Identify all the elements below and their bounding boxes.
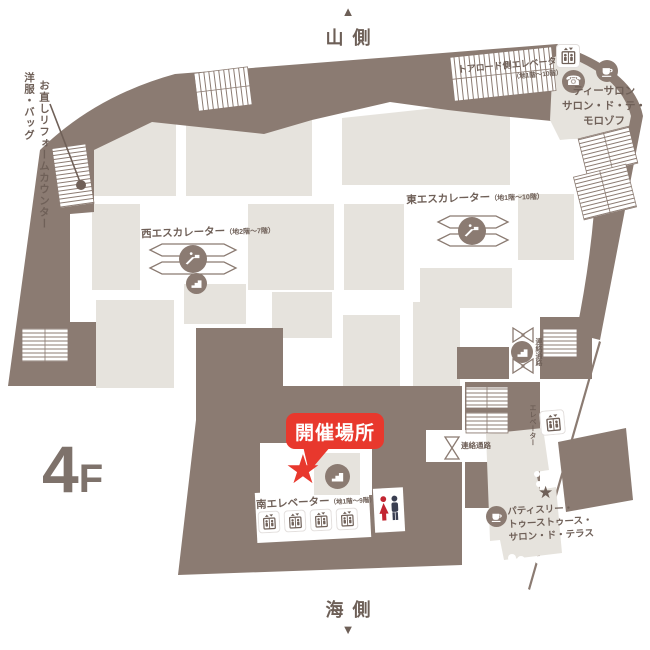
tea-cup-icon (486, 506, 507, 527)
passage-label-center: 連絡通路 (461, 440, 491, 451)
elevator-icon (556, 44, 580, 68)
elevator-icon (257, 510, 280, 533)
passage-label-right: 連絡通路 (533, 338, 543, 378)
compass-mountain-side-label: 山側 (306, 24, 390, 50)
compass-sea-side-label: 海側 (306, 596, 390, 622)
stairs-icon (511, 341, 533, 363)
escalator-icon (458, 217, 486, 245)
tea-salon-label: ティーサロン サロン・ド・テ・ モロゾフ (552, 84, 650, 129)
compass-north-arrow-icon: ▲ (312, 4, 384, 19)
event-location-callout: 開催場所 (286, 413, 384, 449)
stairs-icon (186, 273, 207, 294)
elevator-icon (309, 508, 332, 531)
floor-map: ▲ 山側 海側 ▼ 4F 洋服・バッグ お直しリフォームカウンター トアロード側… (0, 0, 650, 650)
elevator-icon (335, 507, 358, 530)
restroom-icon (373, 487, 405, 533)
side-elevator-label: エレベーター (527, 404, 537, 450)
repair-counter-label-line1: 洋服・バッグ (22, 72, 37, 202)
repair-counter-label-line2: お直しリフォームカウンター (37, 80, 52, 230)
floor-number-suffix: F (79, 457, 103, 501)
escalator-icon (179, 245, 207, 273)
patisserie-label: パティスリー・ トゥーストゥース・ サロン・ド・テラス (507, 501, 599, 545)
elevator-icon (283, 509, 306, 532)
compass-south-arrow-icon: ▼ (312, 622, 384, 637)
floor-number: 4F (42, 436, 103, 502)
stairs-icon (325, 464, 350, 489)
tea-cup-icon (596, 60, 618, 82)
patisserie-star-icon: ★ (538, 484, 553, 501)
event-star-icon: ★ (285, 450, 321, 490)
elevator-icon (539, 409, 566, 436)
floor-number-digit: 4 (42, 432, 79, 506)
